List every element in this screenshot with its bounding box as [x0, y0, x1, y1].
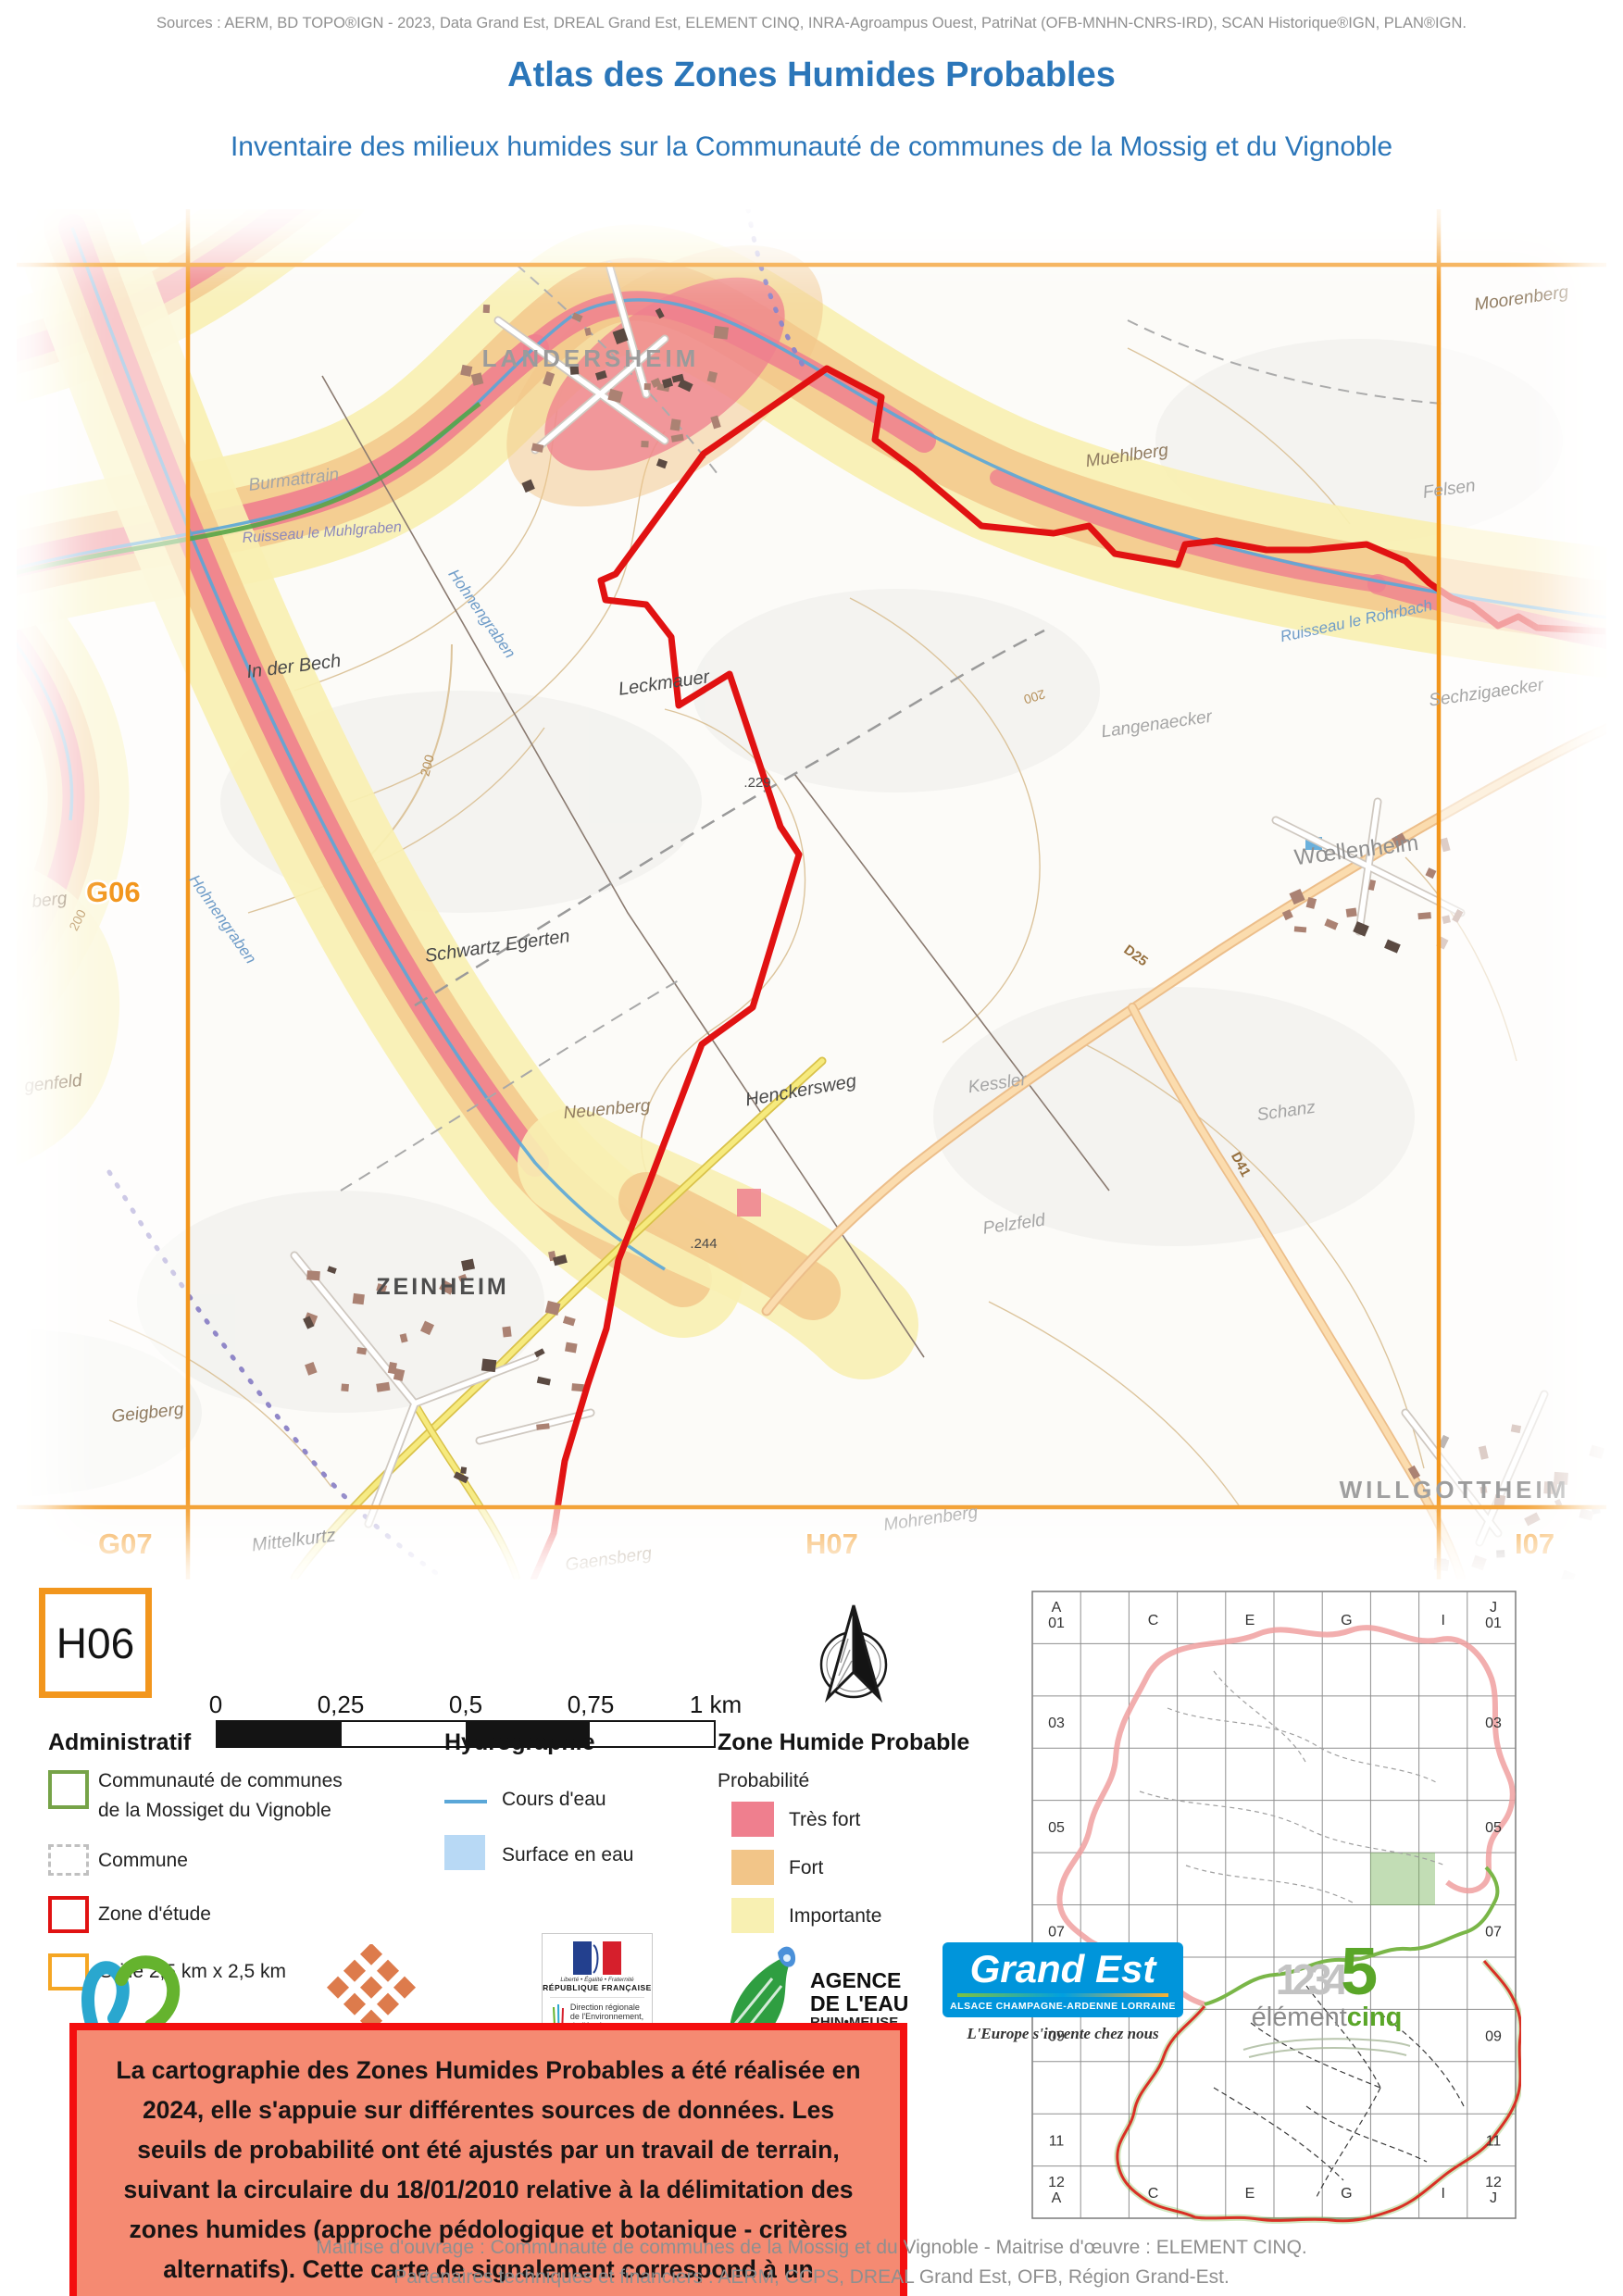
map-label: A [1052, 1600, 1062, 1616]
french-flag-icon [568, 1940, 627, 1977]
grandest-band-stripe [957, 1993, 1168, 1997]
legend-swatch-commune [48, 1844, 89, 1876]
rf-dir2: de l'Environnement, [570, 2012, 643, 2021]
element-sketch-icon [1234, 2033, 1419, 2065]
legend-swatch-cc [48, 1770, 89, 1809]
agence-l1: AGENCE [810, 1969, 908, 1991]
grid-cell-label: I07 [1515, 1528, 1554, 1560]
minimap-current-cell [1370, 1853, 1435, 1905]
map-label: C [1148, 2186, 1159, 2202]
page-subtitle: Inventaire des milieux humides sur la Co… [0, 131, 1623, 163]
grandest-tagline: L'Europe s'invente chez nous [943, 2025, 1183, 2043]
map-label: 11 [1486, 2133, 1502, 2149]
scale-tick-label: 0 [209, 1691, 222, 1719]
map-label: LANDERSHEIM [482, 344, 700, 372]
map-label: 05 [1048, 1820, 1065, 1836]
rf-dir1: Direction régionale [570, 2003, 643, 2012]
legend-label-surface-eau: Surface en eau [502, 1844, 633, 1866]
grid-cell-label: G06 [86, 876, 141, 908]
map-label: 03 [1485, 1716, 1502, 1731]
rf-name: RÉPUBLIQUE FRANÇAISE [543, 1983, 652, 1992]
legend-label-cours-eau: Cours d'eau [502, 1789, 606, 1811]
legend-label-cc-1: Communauté de communes [98, 1770, 343, 1792]
main-map: G06G07H07I07 LANDERSHEIMZEINHEIMWILLGOTT… [17, 209, 1606, 1579]
atlas-page: Sources : AERM, BD TOPO®IGN - 2023, Data… [0, 0, 1623, 2296]
page-ref-label: H06 [56, 1618, 134, 1668]
page-ref-box: H06 [39, 1588, 152, 1698]
grid-cell-label: H07 [805, 1528, 858, 1560]
map-label: 01 [1048, 1616, 1065, 1631]
map-label: WILLGOTTHEIM [1340, 1476, 1570, 1504]
page-title: Atlas des Zones Humides Probables [0, 56, 1623, 95]
element-name1: élément [1252, 2003, 1347, 2032]
map-label: 01 [1485, 1616, 1502, 1631]
map-label: G [1341, 1613, 1352, 1628]
footer-line-1: Maitrise d'ouvrage : Communauté de commu… [0, 2237, 1623, 2259]
scale-tick-label: 0,75 [568, 1691, 615, 1719]
legend-label-zone: Zone d'étude [98, 1903, 211, 1926]
element-five: 5 [1341, 1935, 1378, 2009]
rf-motto: Liberté • Égalité • Fraternité [543, 1977, 652, 1983]
map-label: berg [31, 889, 68, 912]
legend-swatch-fort [731, 1850, 774, 1885]
legend-admin-title: Administratif [48, 1729, 191, 1756]
sources-line: Sources : AERM, BD TOPO®IGN - 2023, Data… [0, 15, 1623, 32]
map-label: 12 [1048, 2175, 1065, 2190]
map-label: 09 [1485, 2029, 1502, 2045]
map-label: ZEINHEIM [376, 1274, 508, 1300]
map-label: 12 [1485, 2175, 1502, 2190]
warning-text: La cartographie des Zones Humides Probab… [116, 2056, 860, 2296]
legend-label-commune: Commune [98, 1850, 188, 1872]
mossig-logo-icon [66, 1942, 195, 2028]
element-name2: cinq [1347, 2003, 1403, 2032]
map-label: .244 [690, 1236, 717, 1252]
north-arrow-icon [807, 1602, 900, 1711]
footer-line-2: Partenaires techniques et financiers : A… [0, 2266, 1623, 2289]
logo-element-cinq: 12345 élémentcinq [1220, 1942, 1433, 2100]
map-label: I [1441, 1613, 1444, 1628]
legend-label-fort: Fort [789, 1857, 823, 1879]
legend-label-cc-2: de la Mossiget du Vignoble [98, 1800, 331, 1822]
agence-l2: DE L'EAU [810, 1992, 908, 2015]
map-label: C [1148, 1613, 1159, 1628]
legend-swatch-tres-fort [731, 1802, 774, 1837]
legend-zhp-subtitle: Probabilité [718, 1770, 809, 1792]
map-label: E [1245, 2186, 1255, 2202]
legend-swatch-surface-eau [444, 1835, 485, 1870]
scale-tick-label: 1 km [690, 1691, 742, 1719]
map-label: 05 [1485, 1820, 1502, 1836]
map-label: A [1052, 2190, 1062, 2206]
legend-zhp-title: Zone Humide Probable [718, 1729, 969, 1756]
legend-swatch-zone [48, 1896, 89, 1933]
logo-grand-est: Grand Est ALSACE CHAMPAGNE-ARDENNE LORRA… [943, 1942, 1183, 2100]
legend-label-tres-fort: Très fort [789, 1809, 860, 1831]
legend-swatch-importante [731, 1898, 774, 1933]
map-label: .229 [743, 775, 770, 791]
grid-cell-label: G07 [98, 1528, 153, 1560]
map-label: G [1341, 2186, 1352, 2202]
saverne-logo-icon [319, 1944, 421, 2032]
map-label: 03 [1048, 1716, 1065, 1731]
map-label: 07 [1485, 1925, 1502, 1940]
grandest-name: Grand Est [948, 1950, 1178, 1989]
map-label: I [1441, 2186, 1444, 2202]
map-label: E [1245, 1613, 1255, 1628]
element-digits: 1234 [1276, 1955, 1341, 2003]
legend-hydro-title: Hydrographie [444, 1729, 595, 1756]
legend-label-importante: Importante [789, 1905, 881, 1928]
legend-swatch-cours-eau [444, 1800, 487, 1803]
overview-minimap: CCEEGGII03030505070709091111A01J0112A12J [1029, 1588, 1521, 2225]
map-label: J [1490, 2190, 1497, 2206]
scale-tick-label: 0,25 [318, 1691, 365, 1719]
scale-tick-label: 0,5 [449, 1691, 482, 1719]
map-label: 07 [1048, 1925, 1065, 1940]
grandest-band: ALSACE CHAMPAGNE-ARDENNE LORRAINE [948, 2001, 1178, 2012]
map-label: J [1490, 1600, 1497, 1616]
map-label: 11 [1049, 2133, 1065, 2149]
